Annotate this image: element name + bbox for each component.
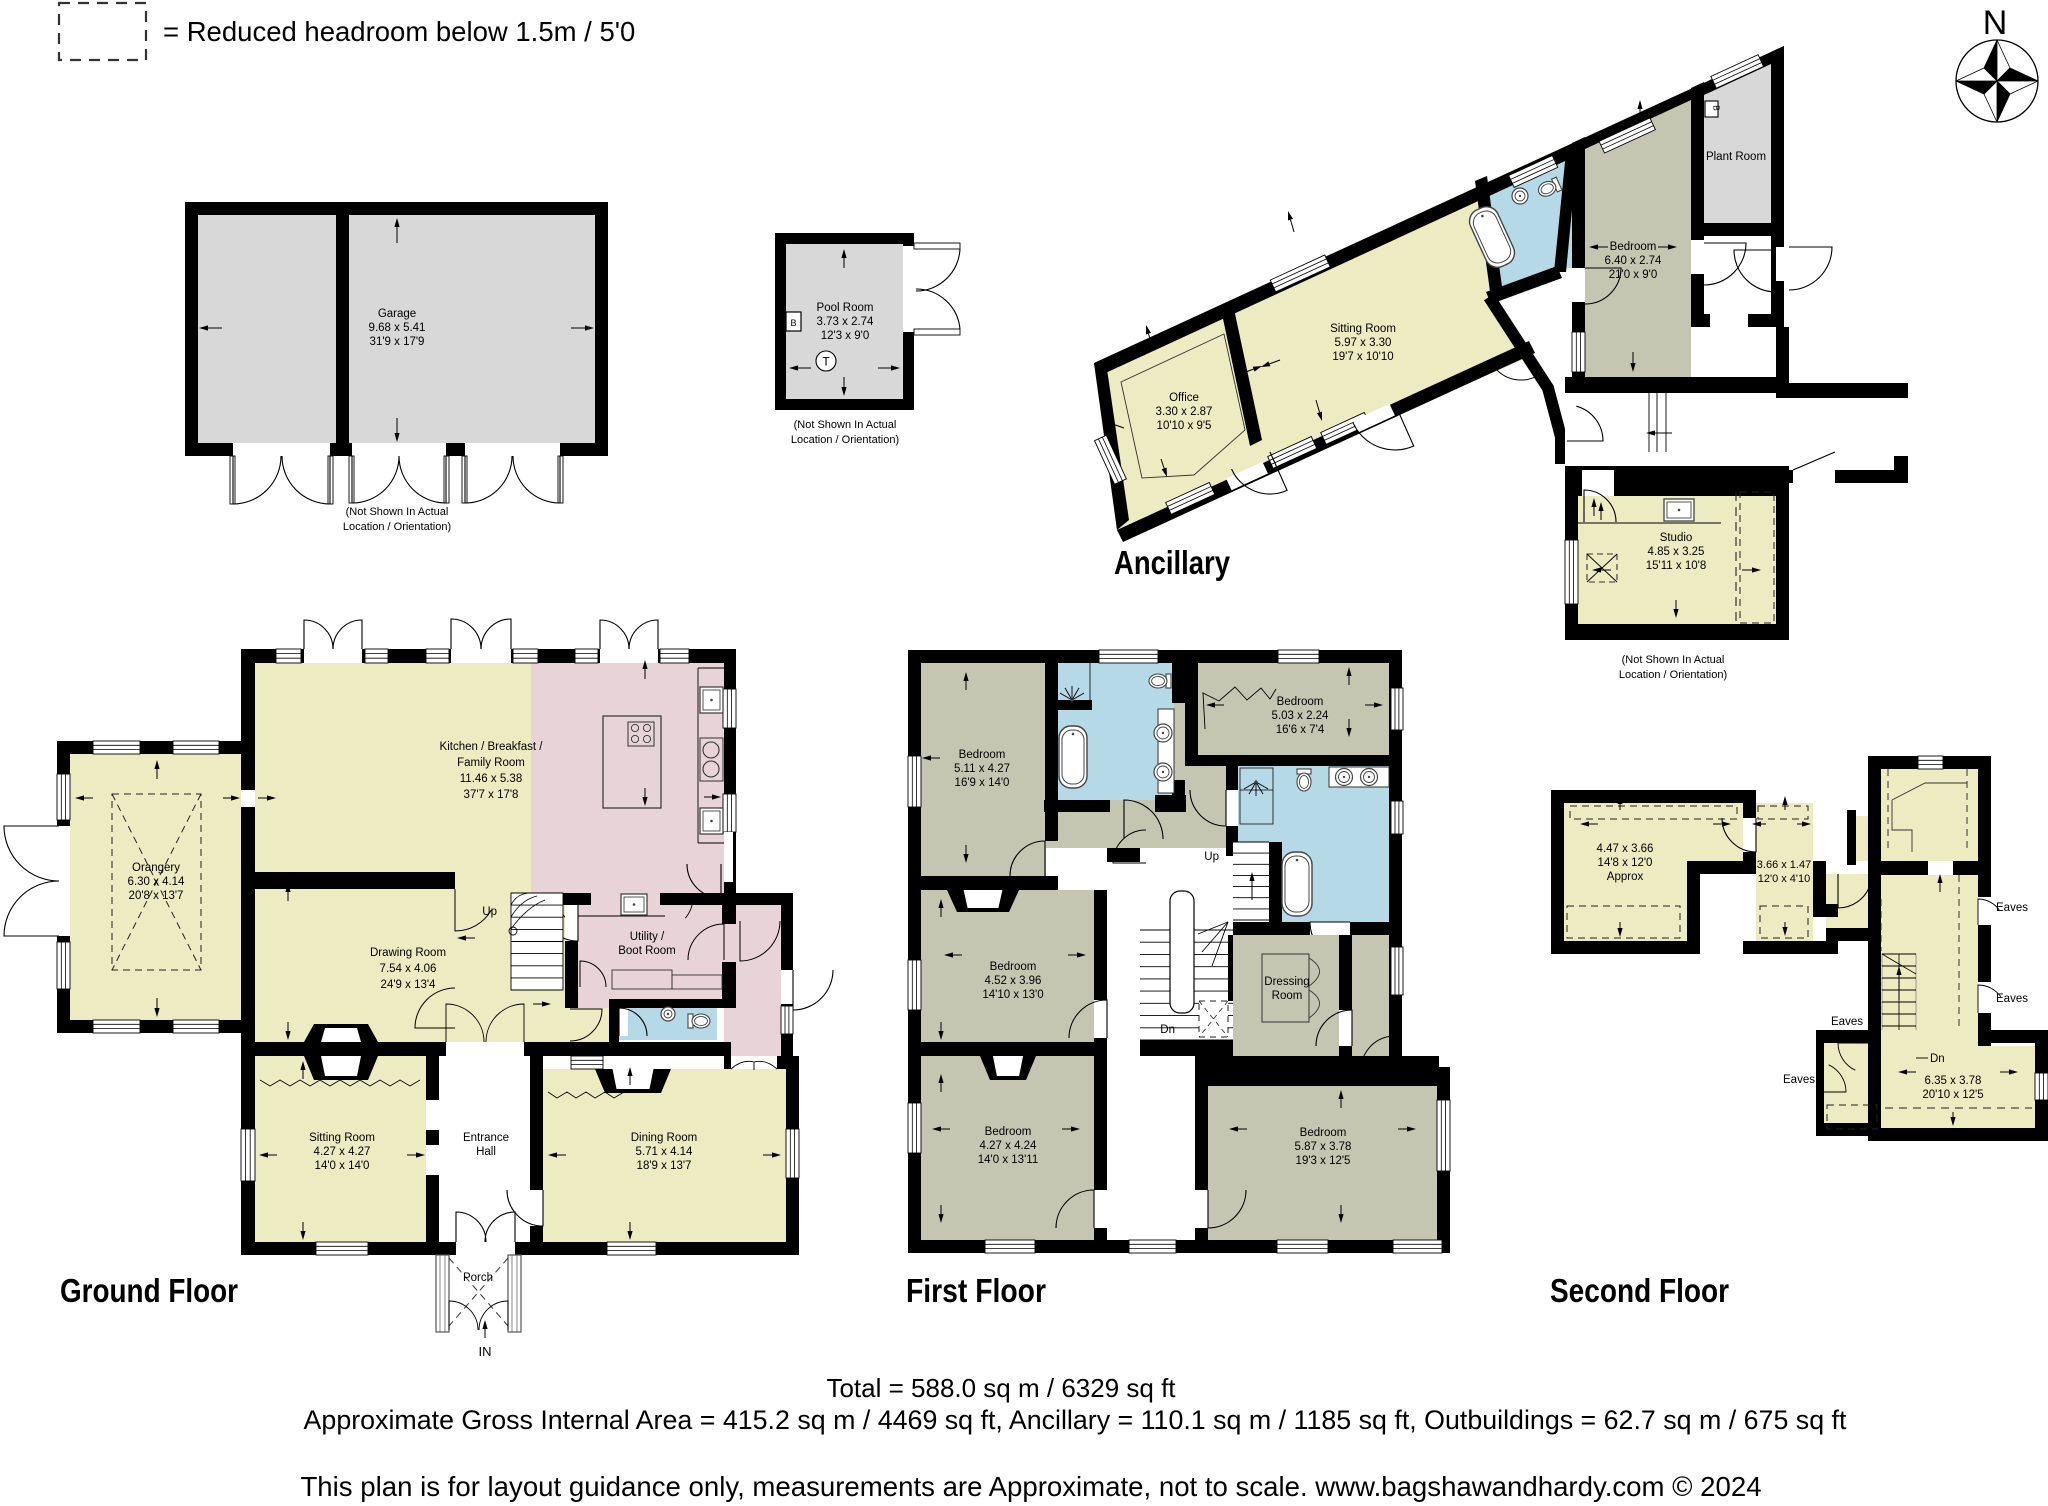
svg-text:4.47 x 3.66: 4.47 x 3.66: [1597, 843, 1654, 855]
svg-text:11.46 x 5.38: 11.46 x 5.38: [460, 773, 522, 785]
svg-text:5.97 x 3.30: 5.97 x 3.30: [1335, 337, 1392, 349]
svg-text:6.40 x 2.74: 6.40 x 2.74: [1605, 255, 1663, 267]
svg-text:Dn: Dn: [1930, 1053, 1945, 1065]
svg-text:16'9 x 14'0: 16'9 x 14'0: [955, 777, 1010, 789]
svg-text:18'9 x 13'7: 18'9 x 13'7: [637, 1160, 692, 1172]
svg-text:21'0 x 9'0: 21'0 x 9'0: [1609, 269, 1658, 281]
svg-text:Ground Floor: Ground Floor: [60, 1272, 238, 1309]
svg-text:20'8 x 13'7: 20'8 x 13'7: [129, 890, 184, 902]
svg-text:Second Floor: Second Floor: [1550, 1272, 1729, 1309]
svg-text:Orangery: Orangery: [132, 862, 180, 874]
svg-text:Sitting Room: Sitting Room: [309, 1132, 375, 1144]
svg-text:5.87 x 3.78: 5.87 x 3.78: [1295, 1141, 1352, 1153]
svg-text:7.54 x 4.06: 7.54 x 4.06: [380, 963, 437, 975]
svg-text:37'7 x 17'8: 37'7 x 17'8: [464, 789, 519, 801]
svg-text:4.52 x 3.96: 4.52 x 3.96: [985, 975, 1042, 987]
svg-text:Plant Room: Plant Room: [1706, 151, 1766, 163]
svg-text:20'10 x 12'5: 20'10 x 12'5: [1922, 1089, 1983, 1101]
svg-text:Dn: Dn: [1160, 1024, 1175, 1036]
svg-text:T: T: [822, 355, 830, 369]
svg-text:Kitchen / Breakfast /: Kitchen / Breakfast /: [440, 741, 544, 753]
svg-text:3.73 x 2.74: 3.73 x 2.74: [817, 316, 875, 328]
svg-text:B: B: [1712, 105, 1722, 111]
svg-text:Entrance: Entrance: [463, 1132, 509, 1144]
svg-text:Porch: Porch: [463, 1272, 493, 1284]
svg-text:Eaves: Eaves: [1783, 1074, 1815, 1086]
svg-text:Bedroom: Bedroom: [1277, 696, 1324, 708]
svg-text:Drawing Room: Drawing Room: [370, 947, 446, 959]
svg-text:14'0 x 13'11: 14'0 x 13'11: [978, 1154, 1038, 1166]
svg-text:This plan is for layout guidan: This plan is for layout guidance only, m…: [300, 1471, 1761, 1502]
svg-text:Hall: Hall: [476, 1146, 496, 1158]
svg-text:Dressing: Dressing: [1264, 976, 1309, 988]
svg-text:= Reduced headroom below 1.5m: = Reduced headroom below 1.5m / 5'0: [163, 16, 635, 47]
svg-text:Bedroom: Bedroom: [1610, 241, 1657, 253]
svg-text:Eaves: Eaves: [1996, 902, 2028, 914]
svg-text:10'10 x 9'5: 10'10 x 9'5: [1157, 420, 1212, 432]
svg-text:12'3 x 9'0: 12'3 x 9'0: [821, 330, 870, 342]
svg-text:N: N: [1983, 4, 2008, 42]
svg-text:Location / Orientation): Location / Orientation): [343, 521, 451, 533]
svg-text:6.35 x 3.78: 6.35 x 3.78: [1925, 1075, 1982, 1087]
svg-text:4.27 x 4.27: 4.27 x 4.27: [314, 1146, 371, 1158]
svg-text:Location / Orientation): Location / Orientation): [791, 434, 899, 446]
svg-text:Utility /: Utility /: [630, 931, 665, 943]
svg-text:IN: IN: [479, 1344, 492, 1359]
svg-text:Boot Room: Boot Room: [618, 945, 676, 957]
svg-text:3.30 x 2.87: 3.30 x 2.87: [1156, 406, 1213, 418]
svg-text:12'0 x 4'10: 12'0 x 4'10: [1758, 873, 1811, 885]
svg-text:14'8 x 12'0: 14'8 x 12'0: [1598, 857, 1653, 869]
svg-text:4.27 x 4.24: 4.27 x 4.24: [980, 1140, 1038, 1152]
svg-text:(Not Shown In Actual: (Not Shown In Actual: [1622, 654, 1725, 666]
svg-text:Total = 588.0 sq m / 6329 sq f: Total = 588.0 sq m / 6329 sq ft: [826, 1373, 1176, 1403]
svg-text:14'10 x 13'0: 14'10 x 13'0: [982, 989, 1043, 1001]
svg-text:5.11 x 4.27: 5.11 x 4.27: [954, 763, 1010, 775]
svg-text:Studio: Studio: [1660, 532, 1693, 544]
svg-text:Approximate Gross Internal Are: Approximate Gross Internal Area = 415.2 …: [304, 1405, 1847, 1435]
svg-text:Bedroom: Bedroom: [990, 961, 1037, 973]
svg-text:24'9 x 13'4: 24'9 x 13'4: [381, 979, 437, 991]
svg-text:Sitting Room: Sitting Room: [1330, 323, 1396, 335]
svg-text:Ancillary: Ancillary: [1114, 544, 1231, 581]
svg-text:Eaves: Eaves: [1831, 1016, 1863, 1028]
svg-text:Family Room: Family Room: [457, 757, 525, 769]
svg-text:31'9 x 17'9: 31'9 x 17'9: [370, 336, 425, 348]
svg-text:15'11 x 10'8: 15'11 x 10'8: [1646, 560, 1706, 572]
svg-text:6.30 x 4.14: 6.30 x 4.14: [128, 876, 186, 888]
svg-text:16'6 x 7'4: 16'6 x 7'4: [1276, 724, 1325, 736]
svg-text:Up: Up: [1204, 851, 1219, 863]
svg-text:(Not Shown In Actual: (Not Shown In Actual: [346, 506, 449, 518]
svg-text:(Not Shown In Actual: (Not Shown In Actual: [794, 419, 897, 431]
svg-text:3.66 x 1.47: 3.66 x 1.47: [1757, 859, 1811, 871]
svg-text:4.85 x 3.25: 4.85 x 3.25: [1648, 546, 1705, 558]
svg-text:Garage: Garage: [378, 308, 416, 320]
svg-text:Pool Room: Pool Room: [817, 302, 874, 314]
svg-text:Location / Orientation): Location / Orientation): [1619, 669, 1727, 681]
svg-text:19'3 x 12'5: 19'3 x 12'5: [1296, 1155, 1351, 1167]
svg-text:9.68 x 5.41: 9.68 x 5.41: [369, 322, 426, 334]
svg-text:Bedroom: Bedroom: [959, 749, 1006, 761]
svg-text:14'0 x 14'0: 14'0 x 14'0: [315, 1160, 370, 1172]
svg-text:Eaves: Eaves: [1996, 993, 2028, 1005]
svg-text:Dining Room: Dining Room: [631, 1132, 697, 1144]
svg-text:First Floor: First Floor: [906, 1272, 1046, 1309]
svg-text:Bedroom: Bedroom: [985, 1126, 1032, 1138]
svg-text:Room: Room: [1272, 990, 1303, 1002]
svg-text:Bedroom: Bedroom: [1300, 1127, 1347, 1139]
svg-text:Approx: Approx: [1607, 871, 1644, 883]
svg-text:19'7 x 10'10: 19'7 x 10'10: [1332, 351, 1393, 363]
svg-text:Office: Office: [1169, 392, 1199, 404]
svg-text:5.71 x 4.14: 5.71 x 4.14: [636, 1146, 694, 1158]
svg-text:5.03 x 2.24: 5.03 x 2.24: [1272, 710, 1330, 722]
svg-text:B: B: [790, 318, 796, 328]
